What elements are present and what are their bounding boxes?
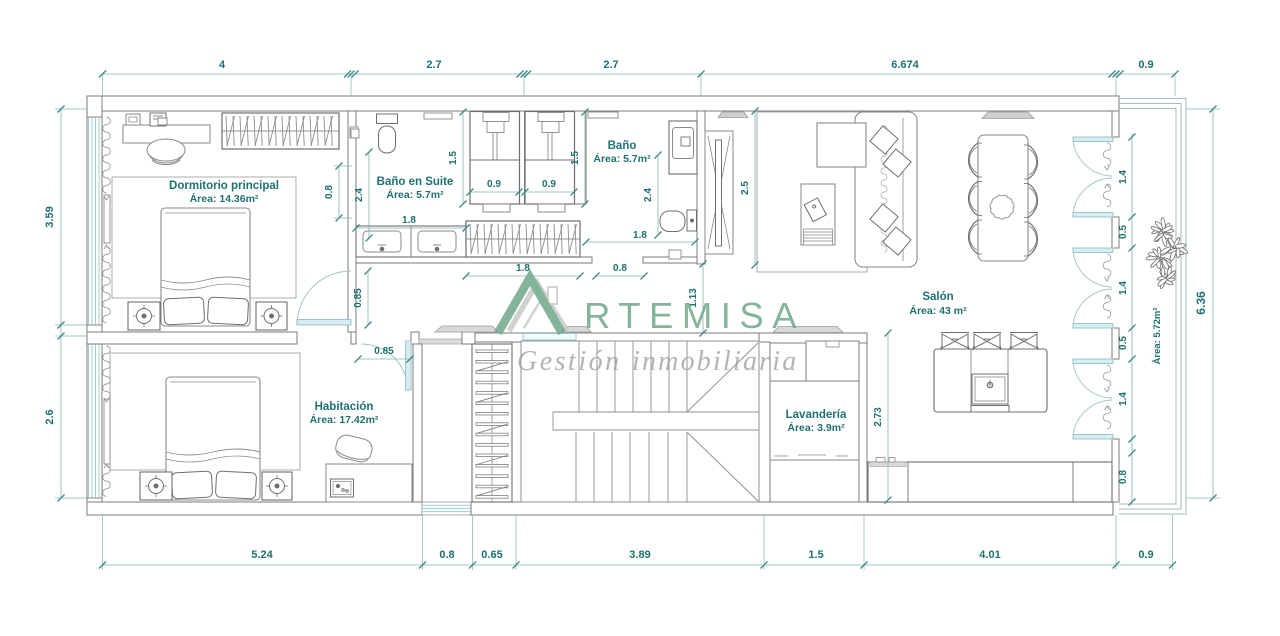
svg-text:5.24: 5.24 [251, 549, 273, 561]
svg-text:6.674: 6.674 [891, 59, 919, 71]
svg-text:2.4: 2.4 [354, 188, 365, 202]
svg-text:1.4: 1.4 [1118, 170, 1129, 184]
svg-text:Área: 5.72m²: Área: 5.72m² [1152, 307, 1163, 364]
svg-text:Área: 3.9m²: Área: 3.9m² [787, 421, 845, 434]
svg-text:Baño: Baño [608, 140, 637, 152]
svg-text:Área: 17.42m²: Área: 17.42m² [310, 413, 379, 426]
svg-text:inmobiliaria: inmobiliaria [632, 346, 798, 377]
svg-text:0.9: 0.9 [487, 179, 501, 190]
svg-text:1.5: 1.5 [570, 151, 581, 165]
svg-text:RTEMISA: RTEMISA [584, 295, 805, 336]
svg-text:2.5: 2.5 [740, 181, 751, 195]
svg-text:0.5: 0.5 [1118, 336, 1129, 350]
svg-text:1.5: 1.5 [448, 151, 459, 165]
svg-text:1.4: 1.4 [1118, 392, 1129, 406]
svg-text:Área: 5.7m²: Área: 5.7m² [386, 188, 444, 201]
svg-text:0.8: 0.8 [439, 549, 454, 561]
svg-text:2.6: 2.6 [44, 409, 56, 424]
svg-text:Dormitorio principal: Dormitorio principal [169, 180, 279, 192]
svg-text:0.65: 0.65 [481, 549, 502, 561]
svg-text:Área: 5.7m²: Área: 5.7m² [593, 152, 651, 165]
svg-text:Gestión: Gestión [517, 346, 622, 377]
svg-text:0.9: 0.9 [542, 179, 556, 190]
svg-text:4: 4 [219, 59, 226, 71]
svg-text:1.8: 1.8 [633, 230, 647, 241]
svg-text:Área: 43 m²: Área: 43 m² [909, 304, 967, 317]
svg-text:Lavandería: Lavandería [786, 409, 847, 421]
svg-text:3.59: 3.59 [44, 206, 56, 227]
svg-text:4.01: 4.01 [979, 549, 1000, 561]
svg-text:Área: 14.36m²: Área: 14.36m² [190, 192, 259, 205]
svg-text:1.8: 1.8 [402, 215, 416, 226]
svg-text:2.73: 2.73 [873, 407, 884, 427]
svg-text:0.5: 0.5 [1118, 225, 1129, 239]
svg-text:Salón: Salón [922, 291, 953, 303]
svg-text:0.9: 0.9 [1138, 549, 1153, 561]
svg-text:2.7: 2.7 [426, 59, 441, 71]
svg-text:0.85: 0.85 [353, 288, 364, 308]
svg-text:0.8: 0.8 [1118, 470, 1129, 484]
svg-text:Habitación: Habitación [315, 401, 374, 413]
svg-text:3.89: 3.89 [629, 549, 650, 561]
svg-text:0.9: 0.9 [1138, 59, 1153, 71]
svg-text:6.36: 6.36 [1194, 291, 1208, 315]
svg-text:2.4: 2.4 [643, 188, 654, 202]
svg-text:0.85: 0.85 [374, 346, 394, 357]
svg-text:0.8: 0.8 [324, 185, 335, 199]
svg-text:Baño en Suite: Baño en Suite [377, 176, 454, 188]
svg-text:0.8: 0.8 [613, 263, 627, 274]
svg-text:1.5: 1.5 [808, 549, 823, 561]
svg-text:1.4: 1.4 [1118, 281, 1129, 295]
svg-text:2.7: 2.7 [603, 59, 618, 71]
